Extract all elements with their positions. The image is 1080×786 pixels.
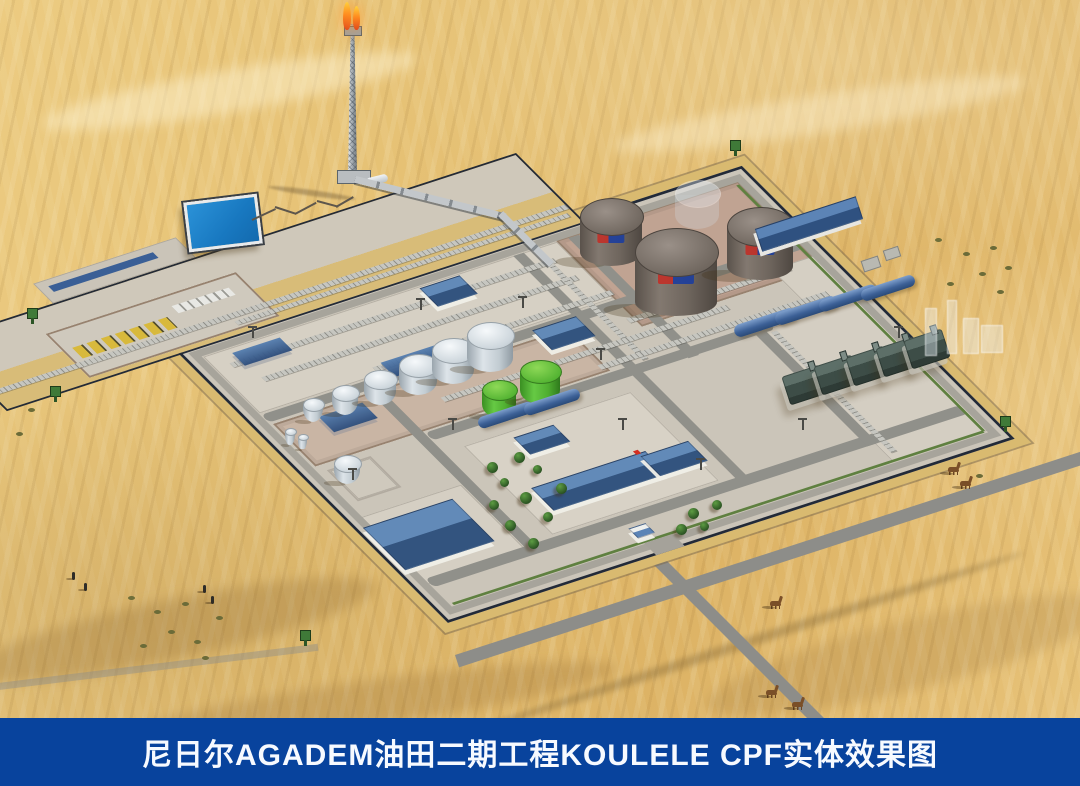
flare-flame [343,2,351,30]
shrub-cluster [935,238,942,242]
tree [520,492,532,504]
crude-oil-tank [580,198,642,266]
watchtower [300,630,311,641]
light-pole [802,418,804,430]
light-pole [522,296,524,308]
caption-title: 尼日尔AGADEM油田二期工程KOULELE CPF实体效果图 [142,730,938,774]
person [84,583,87,591]
caption-banner: 尼日尔AGADEM油田二期工程KOULELE CPF实体效果图 [0,718,1080,786]
light-pole [352,468,354,480]
light-pole [898,326,900,338]
small-vessel [285,428,295,445]
person [203,585,206,593]
small-vessel [298,434,307,449]
tree [489,500,499,510]
tree [712,500,722,510]
tree [543,512,553,522]
future-column [925,308,937,356]
future-skid [981,325,1003,353]
tree [500,478,509,487]
watchtower [1000,416,1011,427]
person [72,572,75,580]
tree [556,483,567,494]
shrub-cluster [128,596,135,600]
tree [700,522,709,531]
light-pole [252,326,254,338]
light-pole [622,418,624,430]
watchtower [730,140,741,151]
process-tank [332,385,358,415]
flare-flame [353,6,360,30]
future-column [947,300,957,354]
light-pole [700,458,702,470]
future-skid [963,318,979,354]
process-tank [467,322,513,372]
tree [676,524,687,535]
rendering: 尼日尔AGADEM油田二期工程KOULELE CPF实体效果图 [0,0,1080,786]
light-pole [452,418,454,430]
watchtower [27,308,38,319]
tree [487,462,498,473]
future-tank [675,180,719,229]
tree [514,452,525,463]
process-tank [364,370,396,405]
tree [528,538,539,549]
camel [766,686,780,698]
person [211,596,214,604]
camel [770,597,784,609]
tree [505,520,516,531]
watchtower [50,386,61,397]
light-pole [600,348,602,360]
process-tank [303,398,323,422]
evaporation-pond [183,194,263,253]
tree [533,465,542,474]
tree [688,508,699,519]
camel [948,463,962,475]
light-pole [420,298,422,310]
camel [960,477,974,489]
camel [792,698,806,710]
